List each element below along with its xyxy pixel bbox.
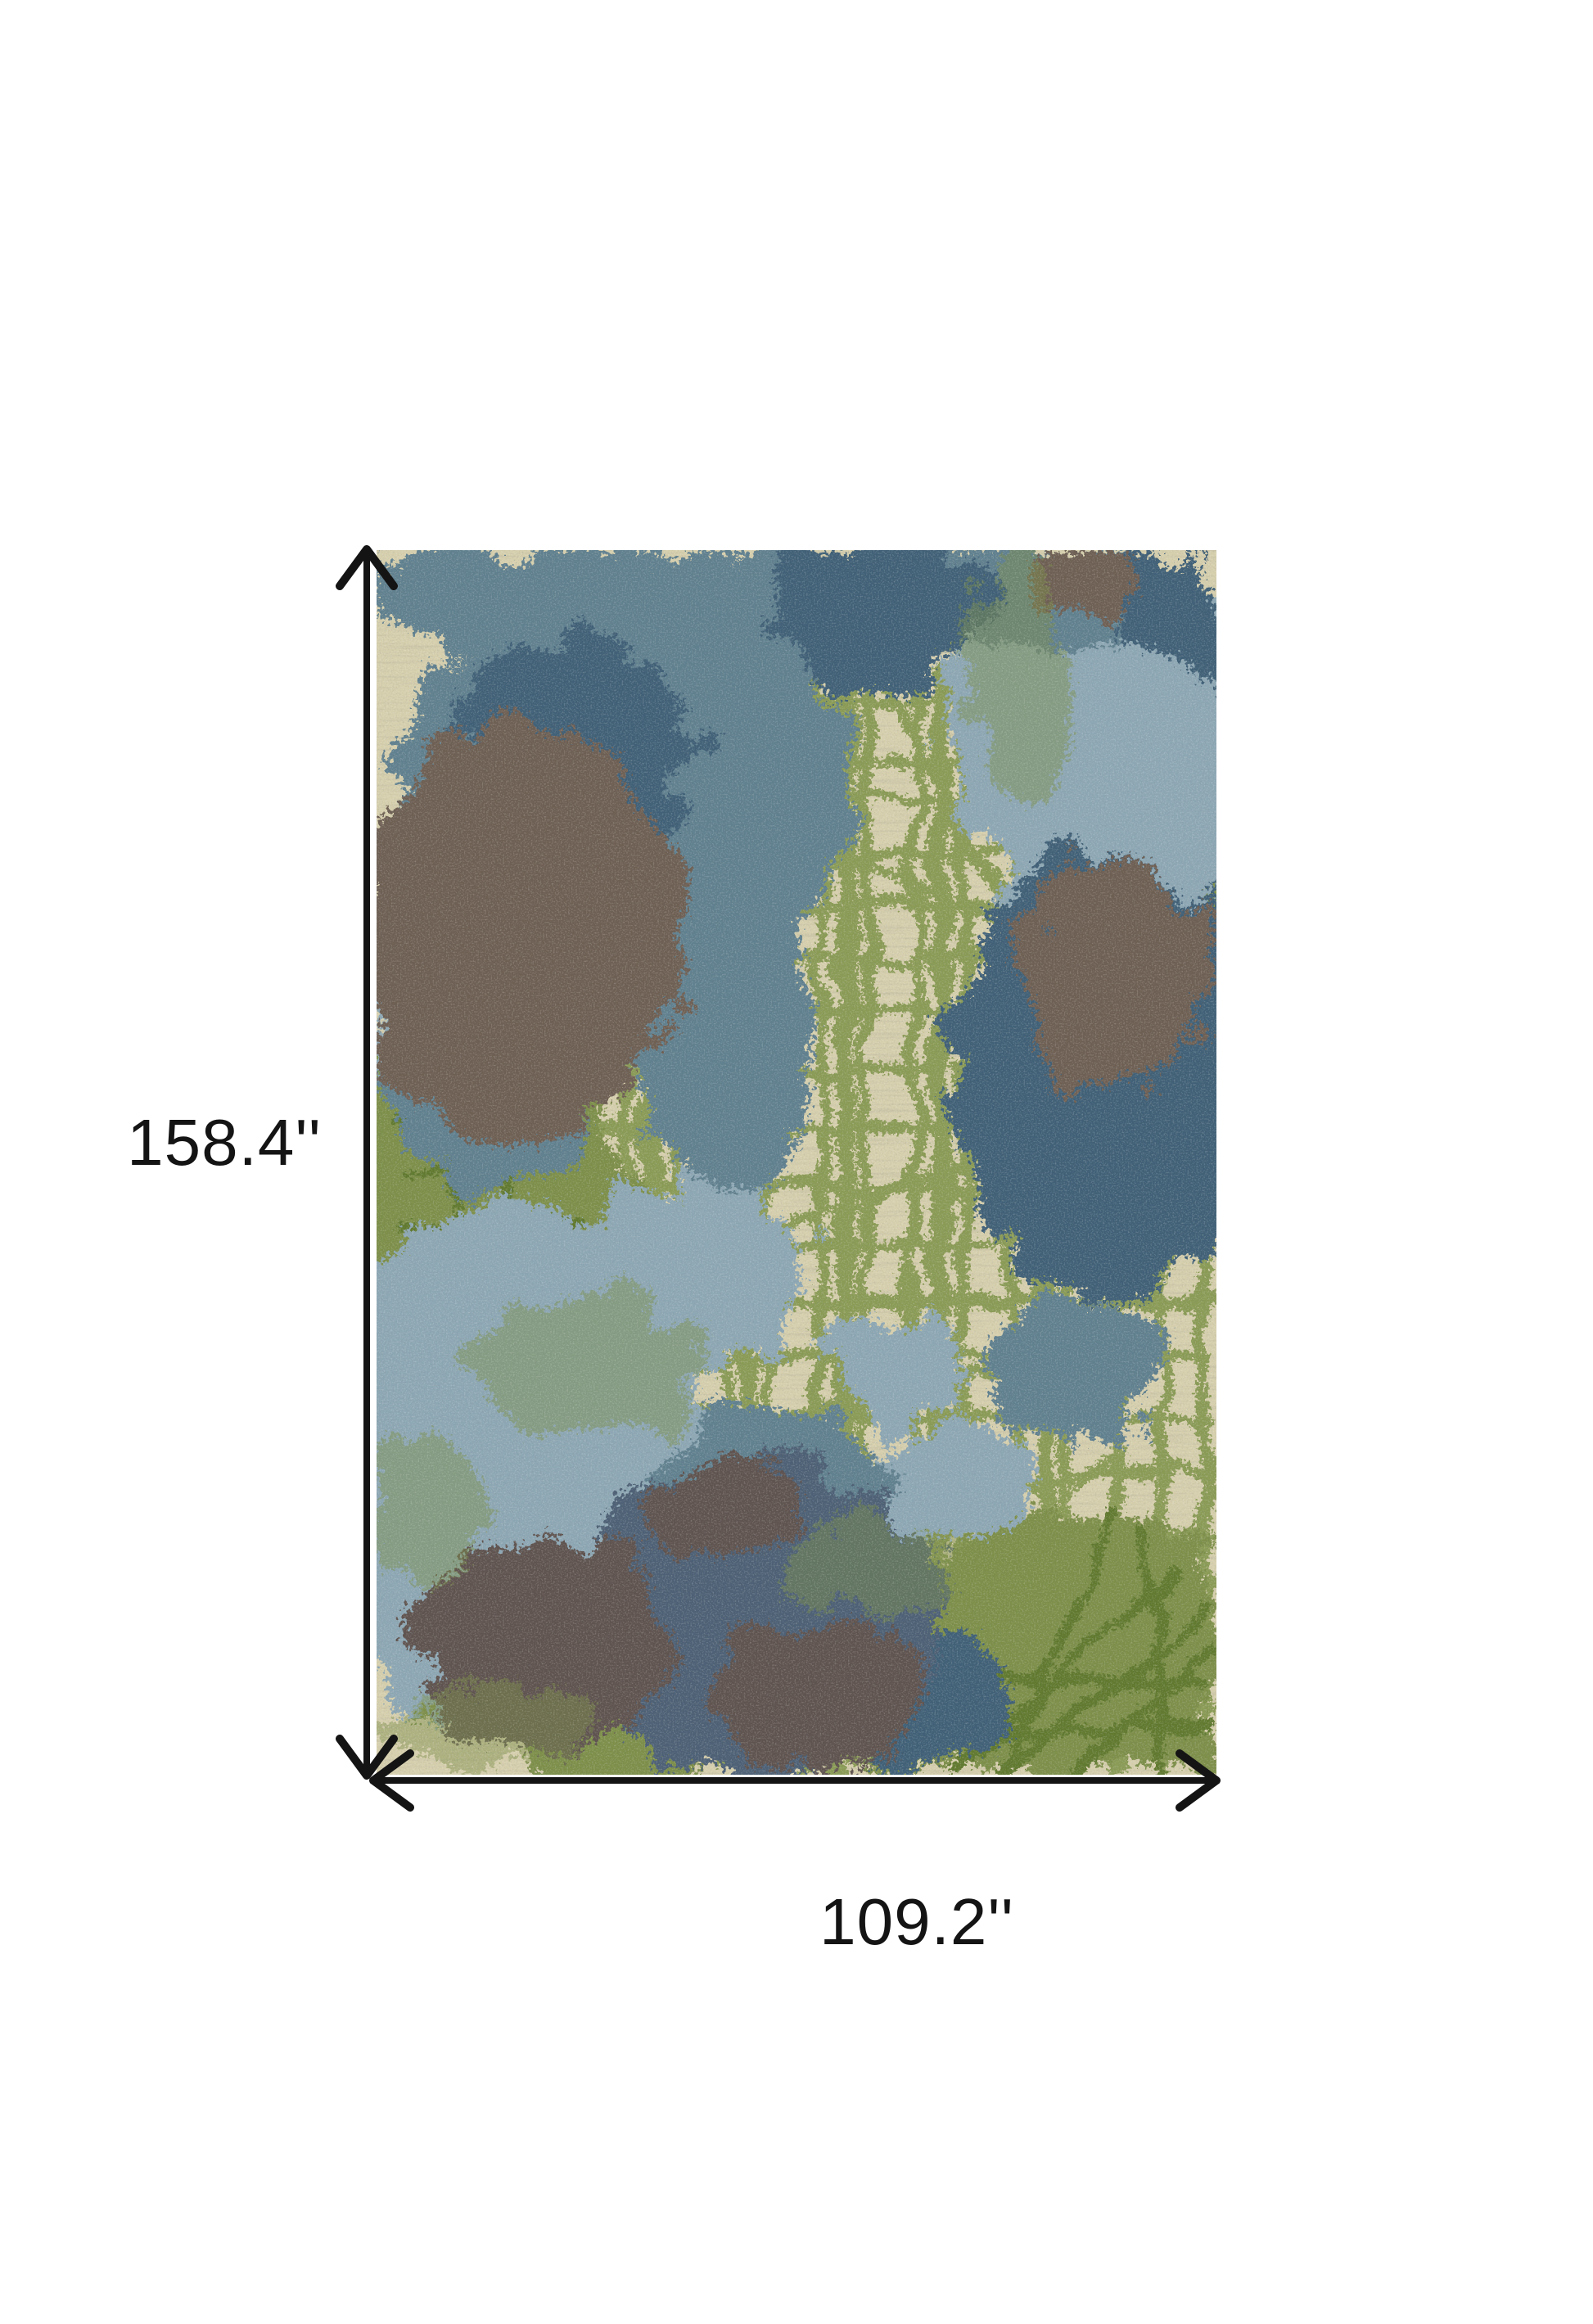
product-dimension-figure: 158.4'' 109.2'' xyxy=(0,0,1593,2324)
rug-image xyxy=(377,550,1216,1775)
height-dimension-label: 158.4'' xyxy=(81,1110,368,1176)
rug-grain-dark xyxy=(377,550,1216,1775)
width-dimension-label: 109.2'' xyxy=(712,1889,1121,1955)
